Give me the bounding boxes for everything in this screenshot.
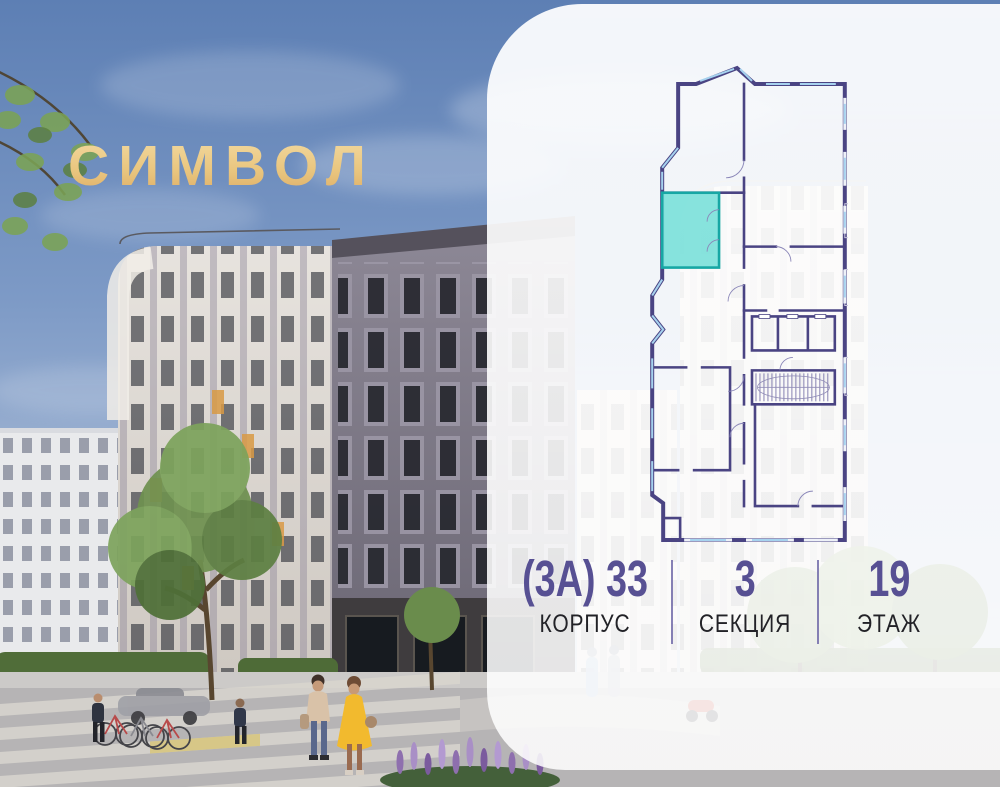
- section-value: 3: [735, 552, 756, 606]
- building-value: (3А) 33: [522, 552, 648, 606]
- floor-label: ЭТАЖ: [831, 610, 947, 639]
- divider: [817, 560, 819, 644]
- floor-info: 19 ЭТАЖ: [820, 552, 958, 639]
- windows: [652, 69, 845, 540]
- interior-walls: [652, 84, 845, 540]
- door-arcs: [726, 160, 813, 506]
- building-info: (3А) 33 КОРПУС: [498, 552, 672, 639]
- exterior-walls: [652, 68, 845, 540]
- logo-text: СИМВОЛ: [68, 126, 438, 206]
- floor-plan: [648, 64, 848, 548]
- section-label: СЕКЦИЯ: [687, 610, 803, 639]
- staircase: [756, 373, 830, 401]
- section-info: 3 СЕКЦИЯ: [676, 552, 814, 639]
- screenshot-root: СИМВОЛ: [0, 0, 1000, 787]
- building-label: КОРПУС: [512, 610, 658, 639]
- selected-apartment[interactable]: [662, 193, 719, 268]
- floor-value: 19: [868, 552, 910, 606]
- divider: [671, 560, 673, 644]
- elevator-doors: [759, 314, 826, 318]
